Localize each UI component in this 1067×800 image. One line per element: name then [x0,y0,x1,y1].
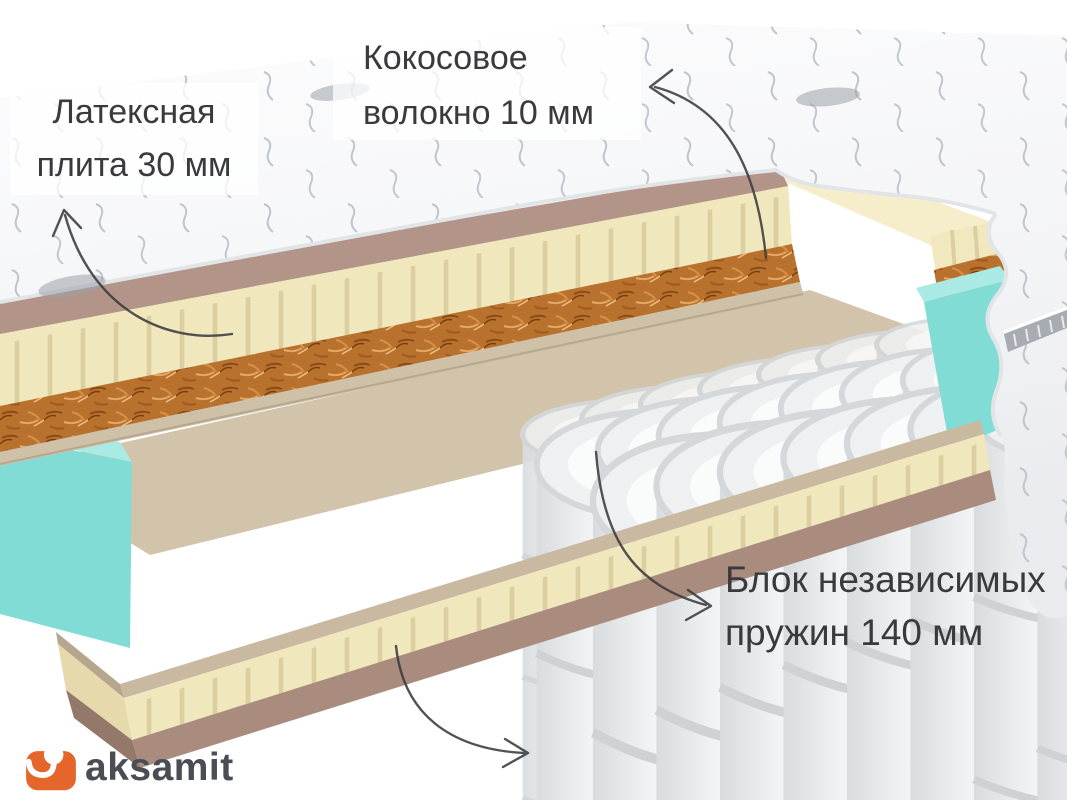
mattress-layers-diagram: Латексная плита 30 мм Кокосовое волокно … [0,0,1067,800]
label-line: волокно 10 мм [363,86,641,141]
label-line: плита 30 мм [10,139,258,192]
brand-logo-text: aksamit [85,744,234,792]
label-coconut-fiber-10mm: Кокосовое волокно 10 мм [333,27,641,140]
label-line: Кокосовое [363,31,641,86]
label-latex-plate-30mm: Латексная плита 30 мм [10,83,258,195]
label-latex-plate-20mm: Латексная плита 20 мм [532,722,942,800]
label-line: Блок независимых [725,553,1046,606]
brand-logo: aksamit [24,744,234,792]
label-line: Латексная [10,86,258,139]
label-line: пружин 140 мм [725,606,1046,659]
label-spring-block-140mm: Блок независимых пружин 140 мм [725,553,1046,659]
aksamit-logo-icon [24,744,78,792]
